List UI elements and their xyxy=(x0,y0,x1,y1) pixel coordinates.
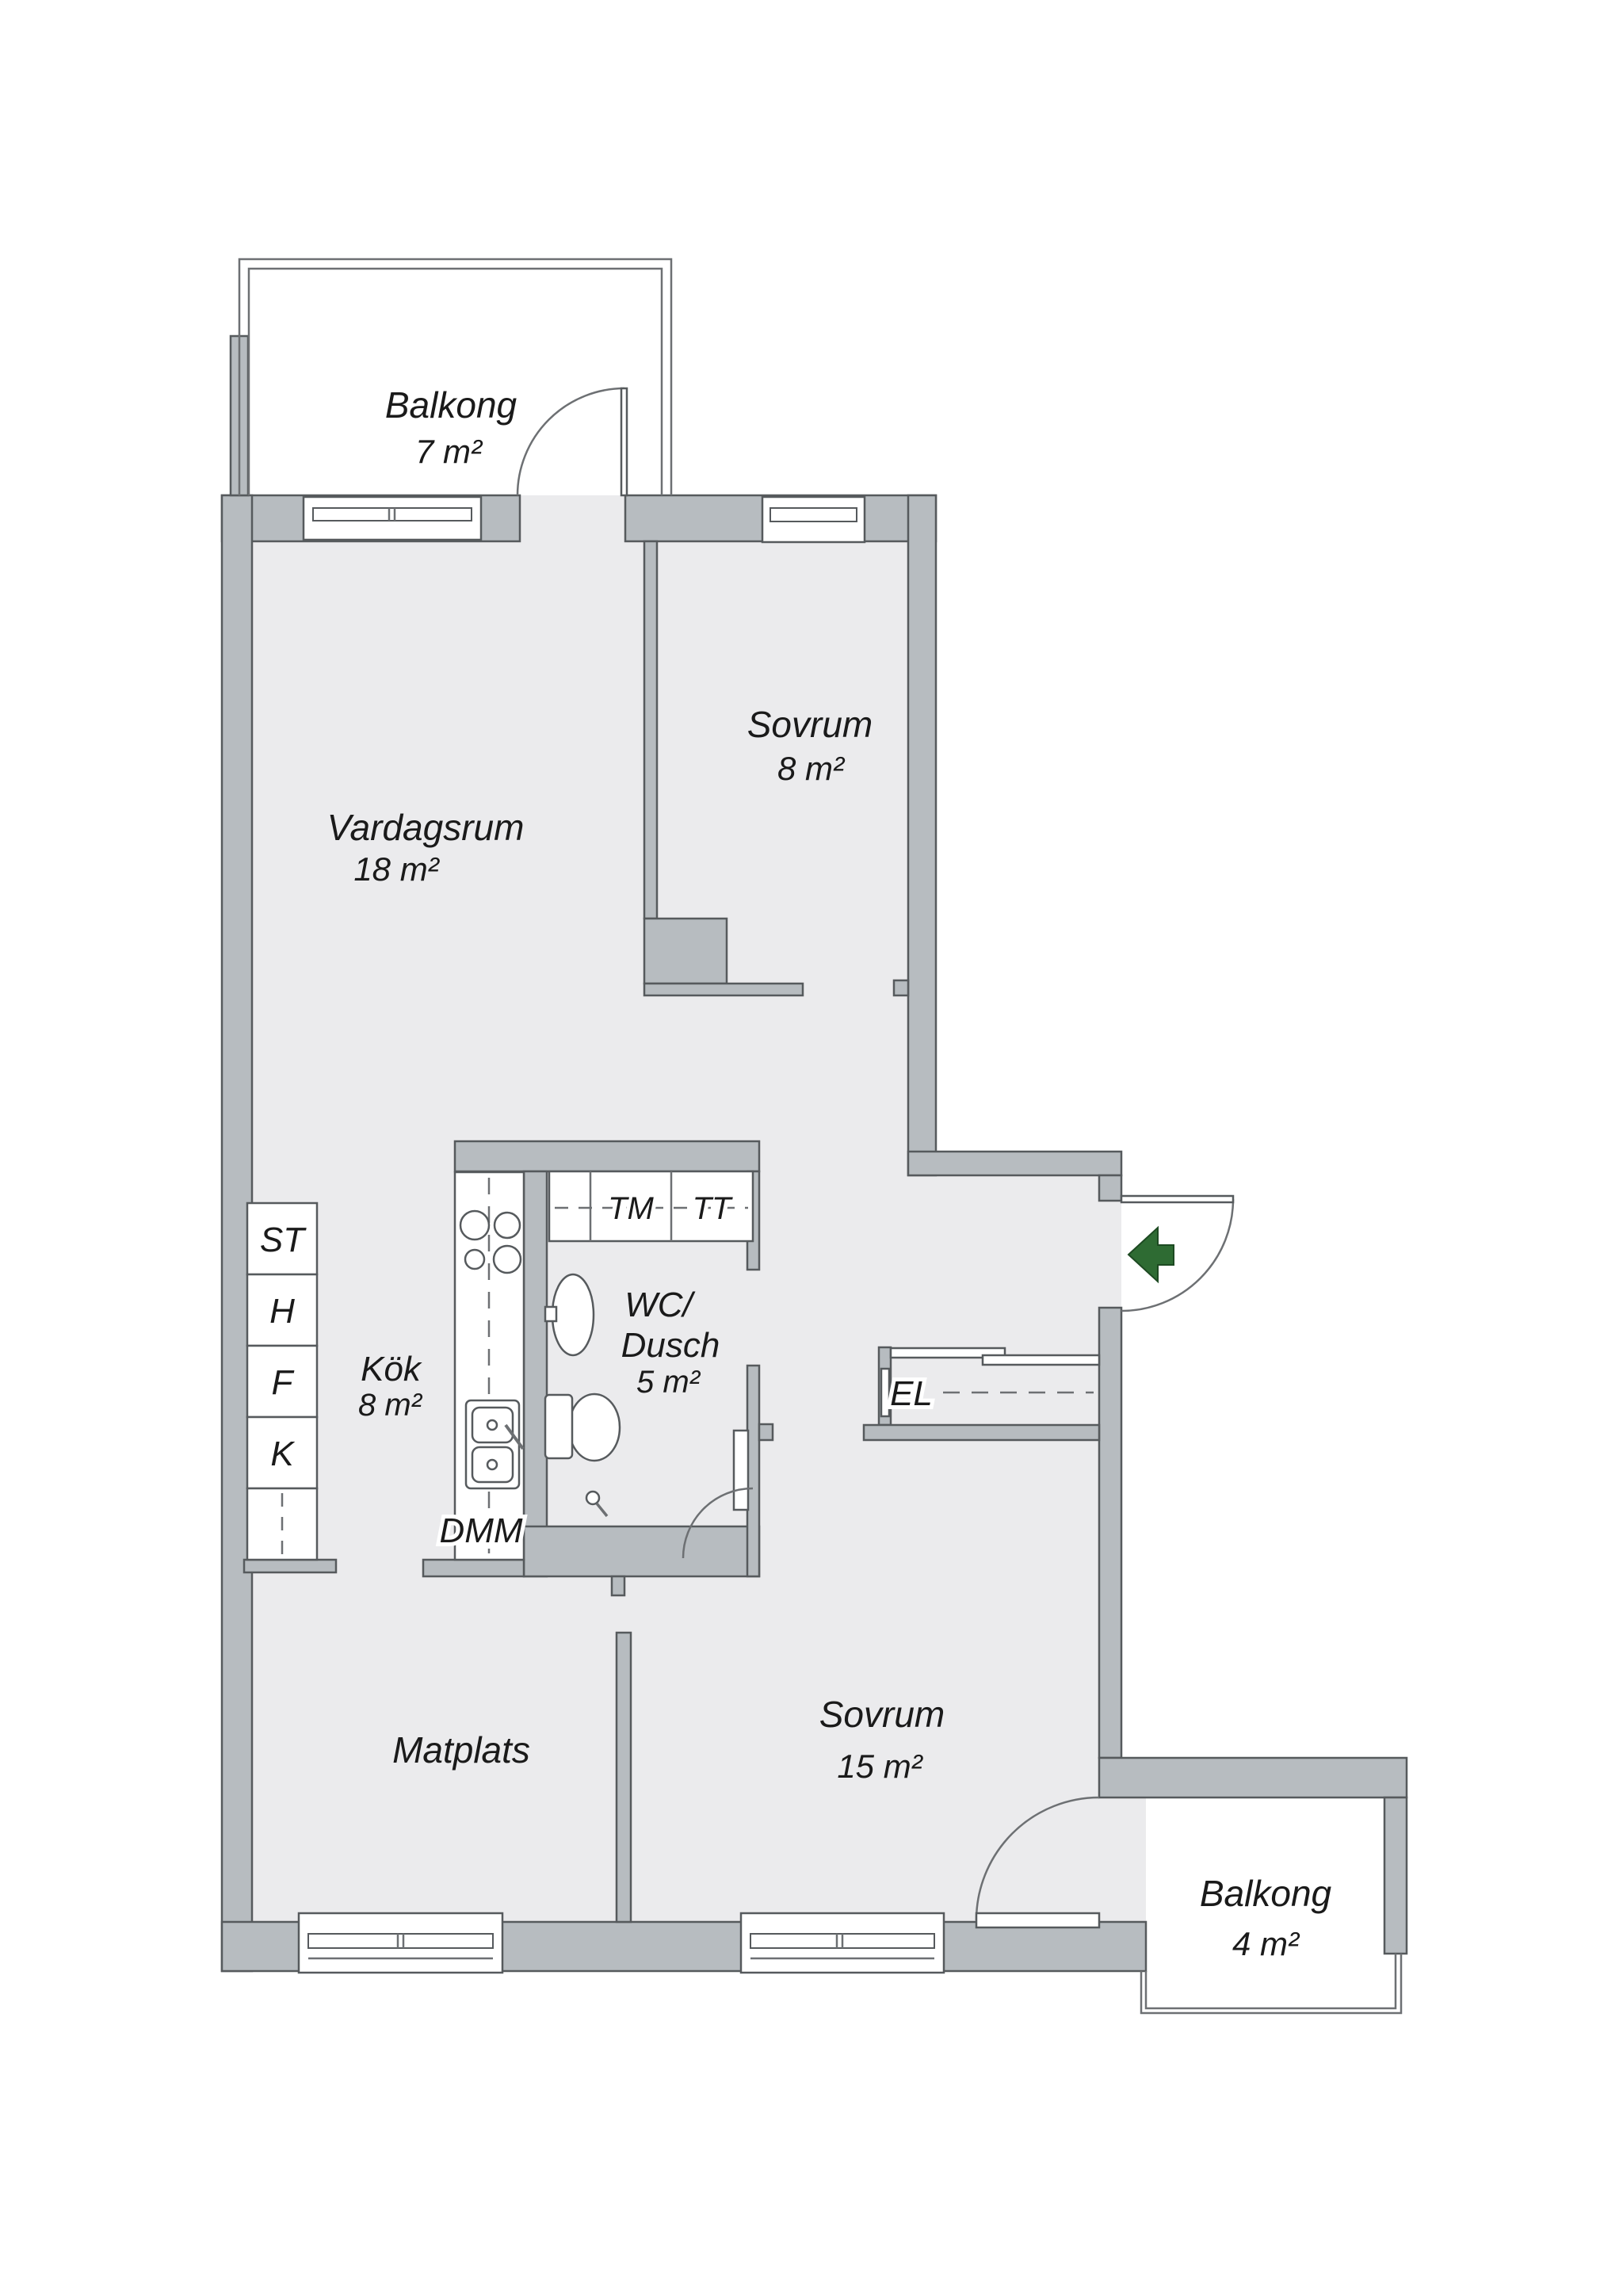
room-area-vardagsrum: 18 m² xyxy=(353,850,440,888)
room-label-wc-2: Dusch xyxy=(621,1326,720,1365)
wall-segment xyxy=(617,1633,631,1922)
room-label-kok: Kök xyxy=(361,1350,422,1389)
doorway-floor-entry xyxy=(1099,1196,1121,1311)
wall-segment xyxy=(908,495,936,1175)
wall-segment xyxy=(455,1141,759,1171)
room-label-vardagsrum: Vardagsrum xyxy=(327,807,525,848)
closet-label-st: ST xyxy=(260,1221,307,1259)
wall-segment xyxy=(864,1425,1099,1440)
wall-segment xyxy=(244,1560,336,1572)
wall-segment xyxy=(644,541,657,919)
room-area-balkong-top: 7 m² xyxy=(415,433,483,470)
wall-segment xyxy=(1099,1175,1121,1201)
sink-icon xyxy=(466,1400,523,1488)
window-dining xyxy=(299,1913,502,1973)
room-area-wc: 5 m² xyxy=(636,1365,701,1400)
door-wc-sliding xyxy=(734,1431,748,1510)
wall-segment xyxy=(759,1424,773,1440)
wall-segment xyxy=(908,1152,1121,1175)
doorway-floor-balcony-top xyxy=(520,495,625,541)
window-living-room xyxy=(304,497,481,540)
room-area-balkong-bottom: 4 m² xyxy=(1232,1925,1300,1962)
wall-segment xyxy=(524,1171,547,1576)
wall-segment xyxy=(644,984,803,995)
doorway-floor-balcony-bottom xyxy=(1099,1797,1146,1922)
floor-plan: Balkong 7 m² Vardagsrum 18 m² Sovrum 8 m… xyxy=(0,0,1623,2296)
room-label-wc: WC/ xyxy=(624,1286,695,1324)
wall-segment xyxy=(423,1560,524,1576)
appliance-label-tm: TM xyxy=(608,1191,654,1226)
appliance-label-dmm: DMM xyxy=(439,1511,522,1550)
door-balcony-top xyxy=(517,388,627,495)
wall-segment xyxy=(524,1526,759,1576)
wall-segment xyxy=(1099,1758,1407,1797)
window-bedroom-15 xyxy=(741,1913,944,1973)
door-entry xyxy=(1121,1196,1233,1311)
appliance-label-el: EL xyxy=(890,1374,933,1413)
wall-segment xyxy=(644,919,727,984)
room-label-sovrum-15: Sovrum xyxy=(819,1694,945,1735)
appliance-label-tt: TT xyxy=(693,1191,733,1226)
room-label-balkong-top: Balkong xyxy=(385,384,517,426)
window-bedroom-8 xyxy=(762,497,865,542)
wall-segment xyxy=(1384,1797,1407,1954)
room-label-balkong-bottom: Balkong xyxy=(1200,1873,1332,1914)
closet-label-f: F xyxy=(272,1363,295,1402)
room-label-matplats: Matplats xyxy=(392,1729,530,1771)
room-label-sovrum-8: Sovrum xyxy=(747,704,873,745)
toilet-icon xyxy=(545,1394,620,1461)
wall-segment xyxy=(612,1576,624,1595)
closet-label-k: K xyxy=(270,1435,295,1473)
room-area-sovrum-15: 15 m² xyxy=(837,1748,923,1785)
closet-label-h: H xyxy=(269,1292,295,1331)
kitchen-counter xyxy=(455,1172,524,1560)
wall-segment xyxy=(894,980,908,995)
room-area-kok: 8 m² xyxy=(358,1388,423,1423)
room-area-sovrum-8: 8 m² xyxy=(777,750,846,787)
wall-segment xyxy=(1099,1308,1121,1758)
balcony-bottom-railing xyxy=(1141,1954,1401,2013)
entrance-arrow-icon xyxy=(1128,1228,1174,1282)
